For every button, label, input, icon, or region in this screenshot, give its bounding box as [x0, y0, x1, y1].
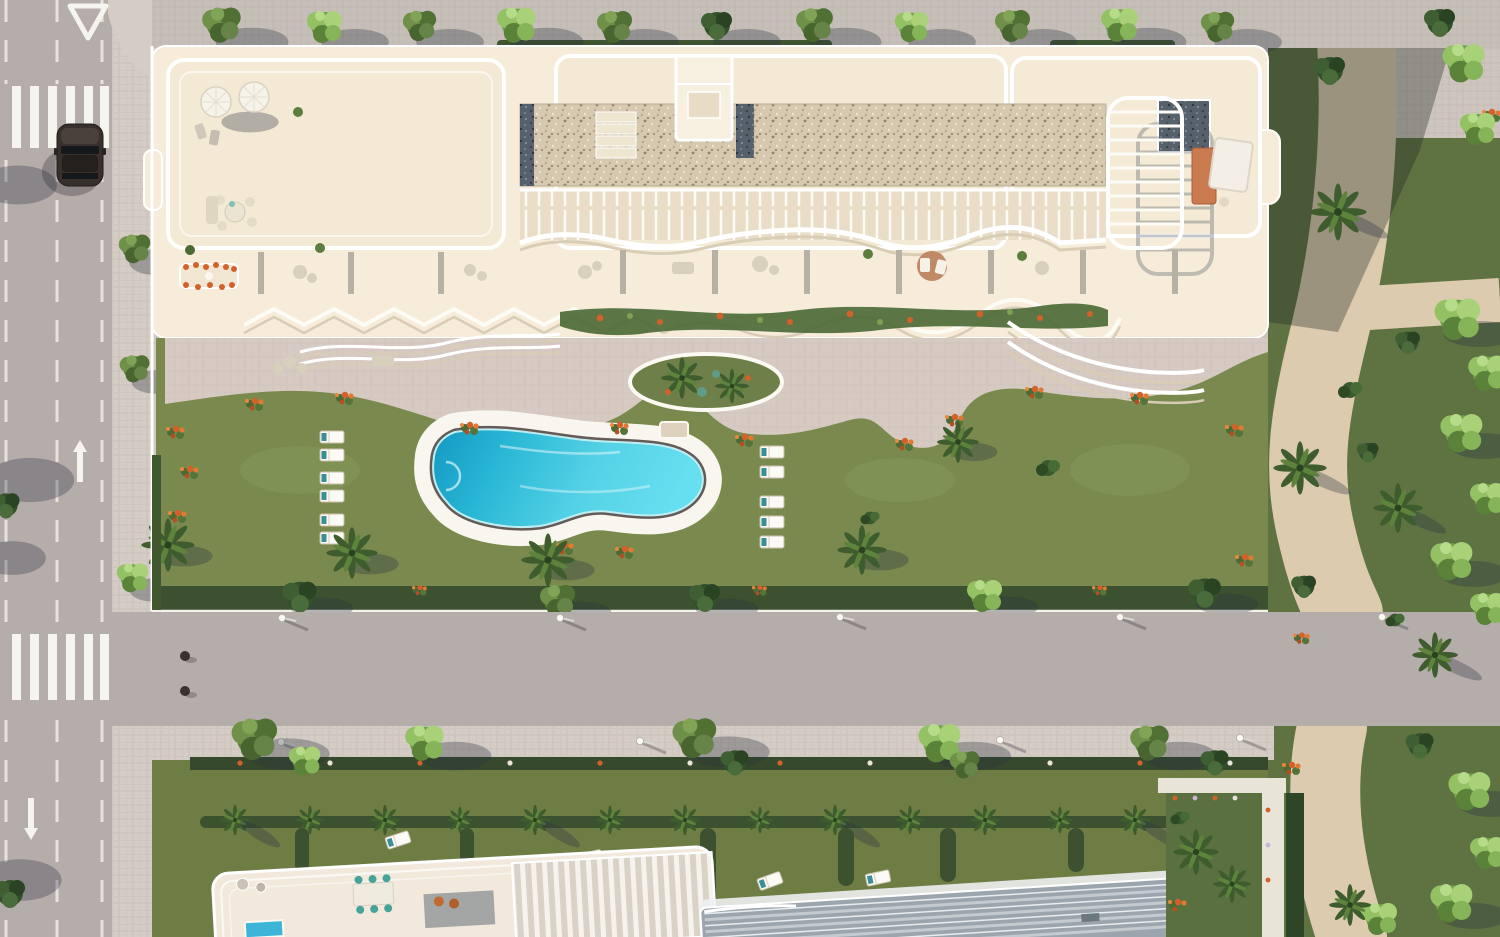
rooftop-umbrella: [239, 82, 269, 112]
rooftop-umbrella: [201, 87, 231, 117]
orange-planter: [180, 262, 238, 290]
middle-road: [112, 612, 1500, 726]
pool-shower-pad: [660, 422, 688, 438]
palm-tree: [521, 533, 574, 586]
palm-tree: [937, 421, 979, 463]
plaza-island-planter: [630, 354, 782, 410]
terrace-plant: [185, 245, 195, 255]
palm-tree: [326, 527, 377, 578]
terrace-plant: [315, 243, 325, 253]
roof-vent: [1081, 913, 1099, 922]
elevator-shaft: [676, 56, 732, 140]
middle-road-asphalt: [112, 612, 1500, 726]
teal-dining-set: [352, 874, 394, 914]
park-sand-path-branch: [1368, 300, 1500, 308]
park-walkway-vertical: [1262, 778, 1284, 937]
private-plunge-pool: [245, 920, 284, 937]
left-sidewalk-texture: [112, 0, 156, 937]
roof-vent: [256, 882, 267, 893]
west-hedge: [152, 455, 161, 610]
rooftop-terrace-left: [168, 60, 504, 255]
main-apartment-building: [144, 46, 1280, 349]
park-hedge: [1286, 793, 1304, 937]
palm-tree: [837, 525, 886, 574]
communal-pool: [433, 422, 703, 527]
rooftop-pergola: [512, 852, 716, 937]
terrace-plant: [293, 107, 303, 117]
roof-vent: [236, 878, 249, 891]
palm-tree: [141, 518, 194, 571]
aerial-render: [0, 0, 1500, 937]
gray-lounge-mat: [423, 890, 495, 928]
